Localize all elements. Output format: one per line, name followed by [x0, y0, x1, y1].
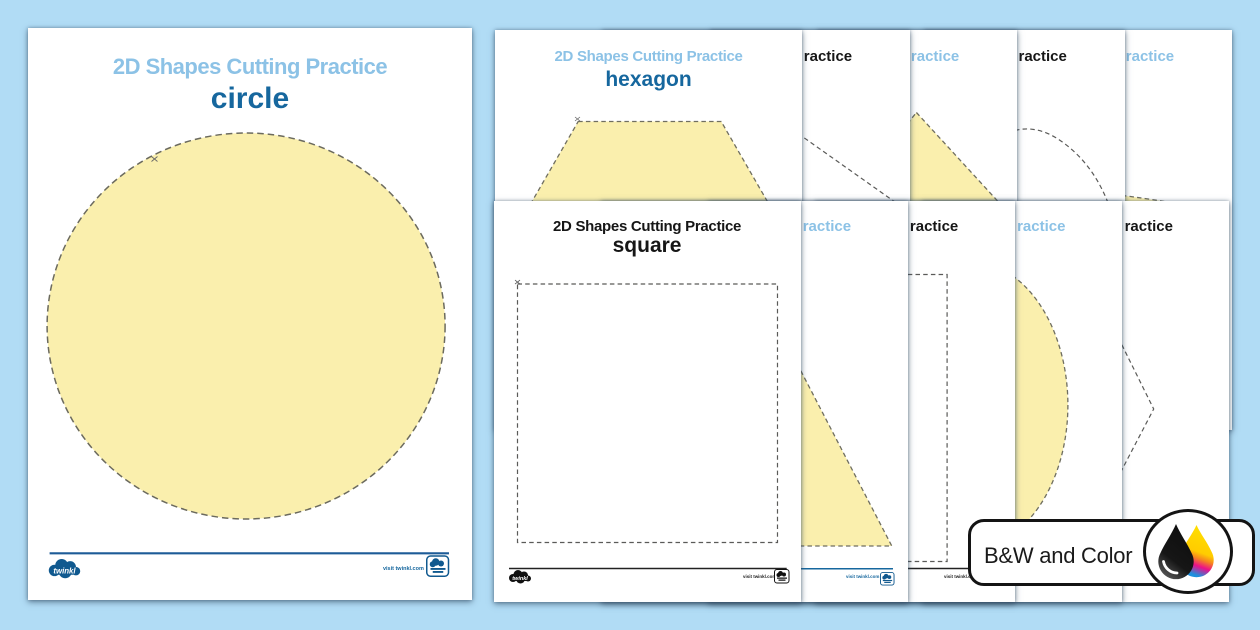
svg-text:visit twinkl.com: visit twinkl.com [846, 573, 879, 578]
svg-text:visit twinkl.com: visit twinkl.com [383, 566, 424, 572]
svg-text:twinkl: twinkl [54, 567, 77, 576]
svg-text:visit twinkl.com: visit twinkl.com [742, 573, 775, 578]
svg-text:twinkl: twinkl [512, 576, 528, 582]
